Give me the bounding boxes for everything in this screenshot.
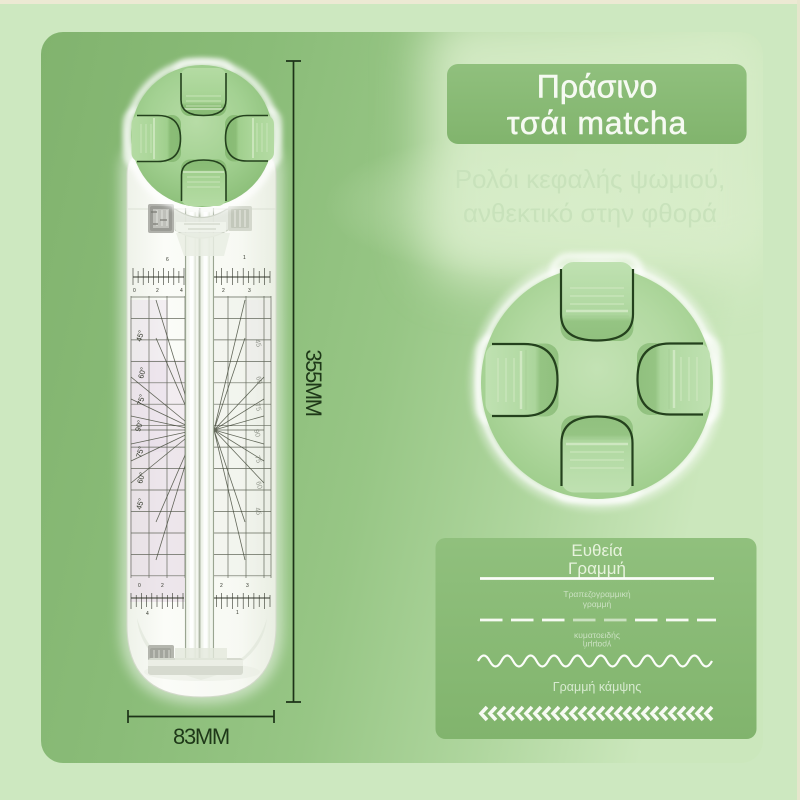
svg-text:3: 3: [248, 288, 251, 294]
svg-text:6: 6: [166, 257, 169, 263]
svg-text:Ευθεία: Ευθεία: [571, 541, 622, 560]
svg-text:Γραμμή κάμψης: Γραμμή κάμψης: [553, 680, 641, 694]
svg-text:83MM: 83MM: [173, 724, 229, 749]
svg-text:Πράσινο: Πράσινο: [537, 69, 657, 105]
svg-text:γραμμή: γραμμή: [582, 640, 611, 650]
svg-text:Τραπεζογραμμική: Τραπεζογραμμική: [563, 589, 630, 599]
svg-text:τσάι matcha: τσάι matcha: [507, 105, 687, 141]
svg-text:1: 1: [243, 255, 246, 261]
svg-text:2: 2: [220, 583, 223, 589]
svg-text:0: 0: [138, 583, 141, 589]
svg-text:2: 2: [156, 288, 159, 294]
svg-text:4: 4: [180, 288, 183, 294]
svg-text:1: 1: [236, 610, 239, 616]
svg-text:ανθεκτικό στην φθορά: ανθεκτικό στην φθορά: [463, 198, 717, 228]
svg-text:Ρολόι κεφαλής ψωμιού,: Ρολόι κεφαλής ψωμιού,: [455, 164, 726, 194]
svg-text:355MM: 355MM: [301, 349, 326, 415]
svg-text:κυματοειδής: κυματοειδής: [574, 630, 620, 640]
svg-text:3: 3: [246, 583, 249, 589]
svg-text:2: 2: [222, 288, 225, 294]
svg-text:0: 0: [133, 288, 136, 294]
svg-text:γραμμή: γραμμή: [583, 599, 612, 609]
svg-text:2: 2: [161, 583, 164, 589]
svg-text:4: 4: [146, 611, 149, 617]
svg-text:Γραμμή: Γραμμή: [568, 559, 626, 578]
